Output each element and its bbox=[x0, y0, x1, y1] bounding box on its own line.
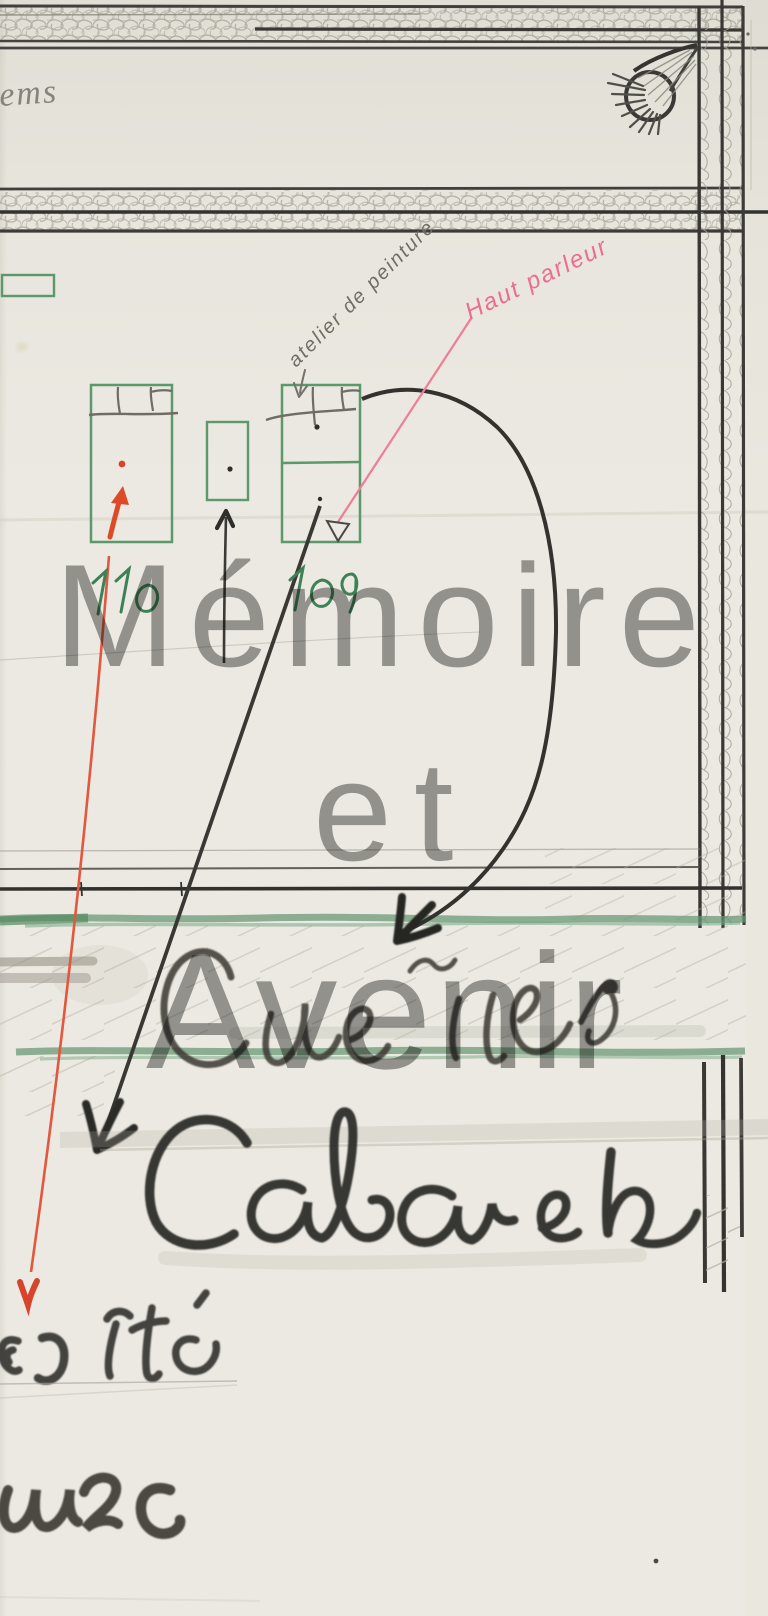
svg-text:Avenir: Avenir bbox=[146, 920, 626, 1103]
svg-text:ems: ems bbox=[0, 73, 59, 114]
svg-text:Mémoire: Mémoire bbox=[54, 534, 713, 697]
svg-text:et: et bbox=[313, 732, 475, 891]
